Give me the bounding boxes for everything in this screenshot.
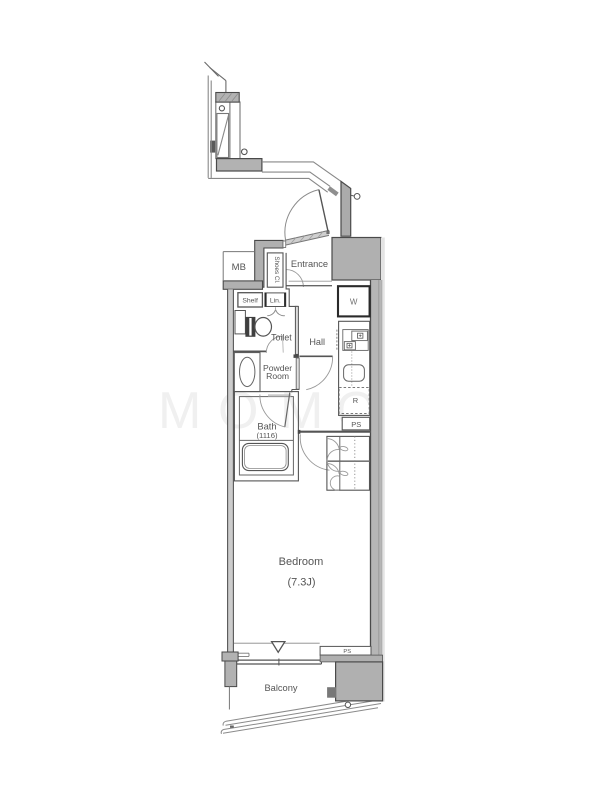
svg-text:(1116): (1116): [256, 431, 278, 440]
svg-text:(7.3J): (7.3J): [287, 576, 315, 588]
svg-text:R: R: [353, 396, 359, 405]
svg-text:PS: PS: [343, 649, 351, 655]
svg-text:M: M: [158, 382, 201, 440]
svg-text:MB: MB: [232, 262, 246, 273]
svg-text:Balcony: Balcony: [264, 683, 297, 693]
svg-text:Shelf: Shelf: [242, 298, 258, 305]
svg-text:Room: Room: [266, 371, 289, 381]
svg-text:PS: PS: [351, 420, 361, 429]
svg-text:Lin.: Lin.: [270, 297, 281, 304]
svg-text:Bedroom: Bedroom: [279, 556, 324, 568]
svg-text:W: W: [350, 297, 358, 306]
svg-text:Toilet: Toilet: [271, 333, 292, 343]
svg-text:Entrance: Entrance: [291, 259, 328, 269]
svg-text:Hall: Hall: [309, 337, 325, 347]
svg-text:Shoes Cl.: Shoes Cl.: [273, 256, 280, 284]
